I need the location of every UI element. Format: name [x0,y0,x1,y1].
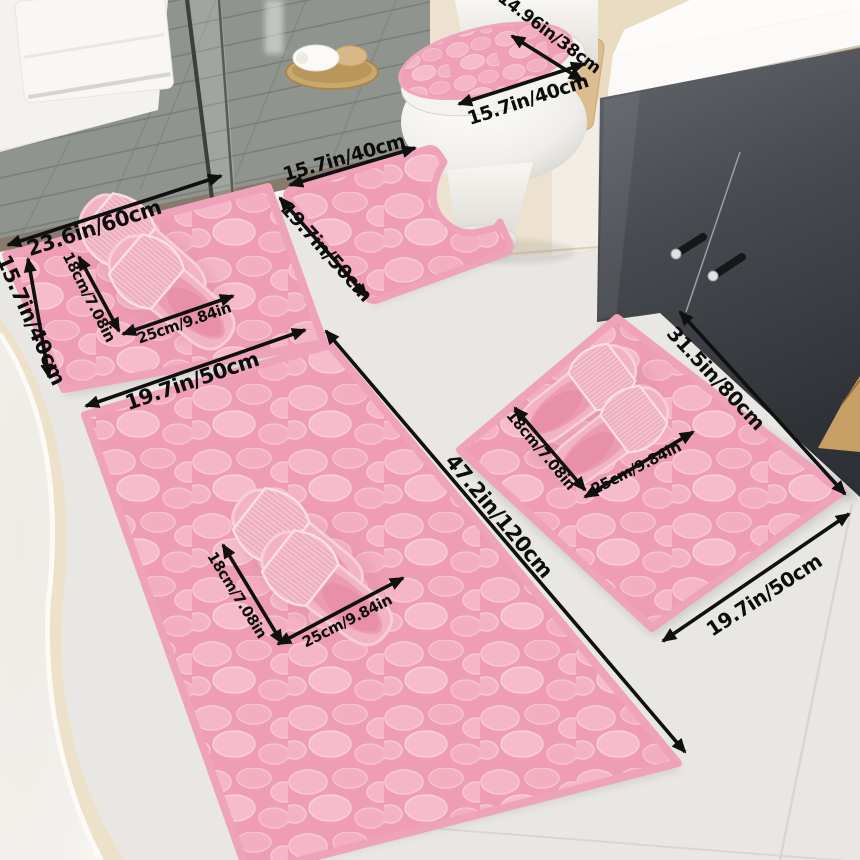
towel-tray [286,45,378,89]
product-photo-bath-mat-set: 14.96in/38cm 15.7in/40cm 15.7in/40cm 19.… [0,0,860,860]
bathroom-scene [0,0,860,860]
hanging-towel [14,0,174,103]
shower-water-stream [265,0,283,54]
